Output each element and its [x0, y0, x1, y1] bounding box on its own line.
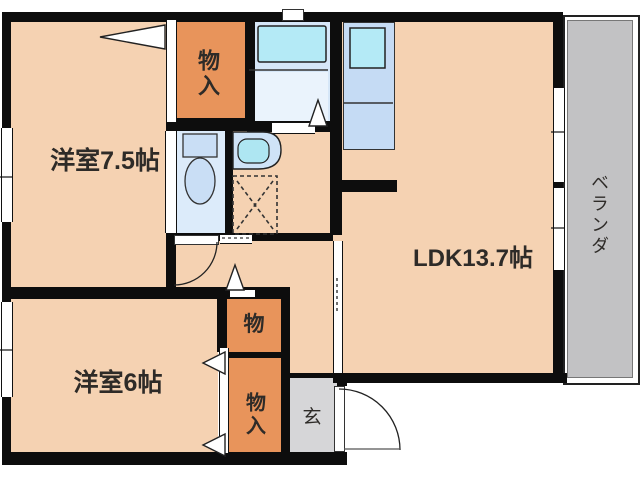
room-label-closet-mid: 物: [240, 310, 268, 336]
wall-toilet-wash-divider: [225, 131, 233, 241]
window-ldk-right-upper: [553, 88, 565, 182]
wall-ldk-bottom: [333, 373, 567, 383]
floor-plan: 洋室7.5帖 洋室6帖 LDK13.7帖 物入 物 物入 玄 ベランダ: [0, 0, 640, 480]
washroom-threshold: [220, 234, 252, 244]
closet-mid-opening: [230, 290, 255, 297]
room-label-closet-top: 物入: [192, 42, 222, 106]
front-door-leaf: [334, 386, 345, 452]
bath-door-threshold: [272, 122, 315, 134]
window-ldk-right-lower: [553, 188, 565, 270]
window-bedroom1-left: [1, 128, 13, 222]
sliding-door-closet-top: [166, 20, 177, 122]
window-bedroom2-left: [1, 302, 13, 397]
room-label-closet-bottom: 物入: [240, 385, 268, 445]
wall-closet-left-upper: [217, 287, 227, 352]
front-door-arc: [339, 389, 400, 450]
wall-entrance-top: [285, 373, 337, 378]
sliding-door-ldk: [333, 241, 343, 373]
kitchen-counter: [343, 22, 395, 150]
wall-closet-top-bottom: [166, 118, 247, 131]
wall-bottom-left: [2, 452, 347, 465]
wall-entry-stub: [337, 376, 347, 386]
room-label-veranda: ベランダ: [585, 160, 613, 270]
room-label-ldk: LDK13.7帖: [398, 241, 548, 269]
room-label-bedroom2: 洋室6帖: [38, 366, 198, 396]
room-label-bedroom1: 洋室7.5帖: [25, 143, 185, 175]
wall-closet-right: [281, 287, 290, 455]
corridor-floor: [290, 287, 333, 373]
wall-bedroom-divider: [2, 287, 227, 299]
bathroom-lower-floor: [249, 72, 328, 121]
sliding-door-closet-bottom: [219, 348, 229, 453]
wall-center-vertical: [330, 12, 342, 235]
hallway-floor: [166, 241, 333, 287]
wall-closet-bath-divider: [245, 12, 255, 131]
wall-ldk-stub: [342, 180, 397, 192]
toilet-door-leaf: [174, 235, 219, 245]
wall-left: [2, 12, 11, 465]
room-label-entrance: 玄: [300, 403, 324, 427]
vent-window-top: [282, 9, 304, 21]
